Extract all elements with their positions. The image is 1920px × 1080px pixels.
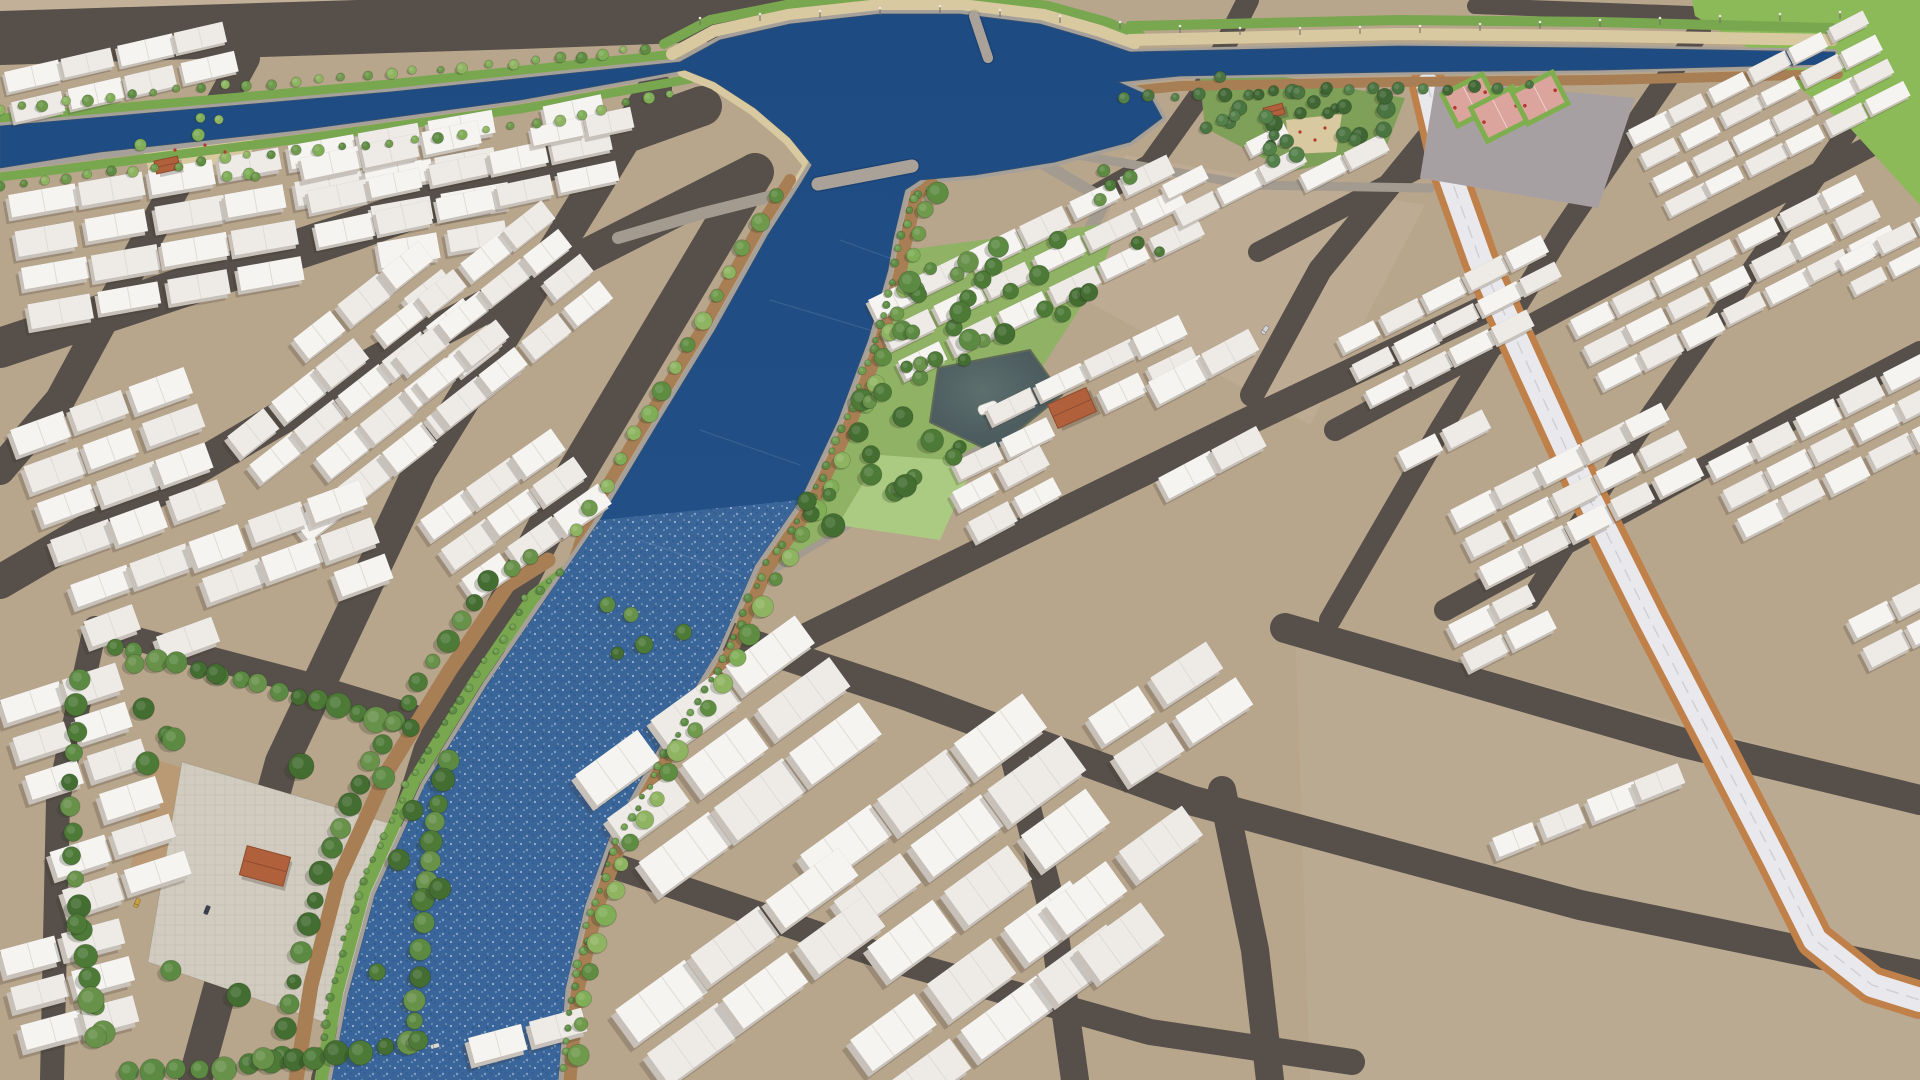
playground-equipment-dot [203,143,206,146]
playground-equipment-dot [173,148,176,151]
playground-equipment-dot [1298,130,1301,133]
masterplan-render [0,0,1920,1080]
bank-rightarm-north-beach [1130,34,1832,40]
playground-equipment-dot [223,150,226,153]
playground-equipment-dot [1323,126,1326,129]
playground-equipment-dot [1313,138,1316,141]
